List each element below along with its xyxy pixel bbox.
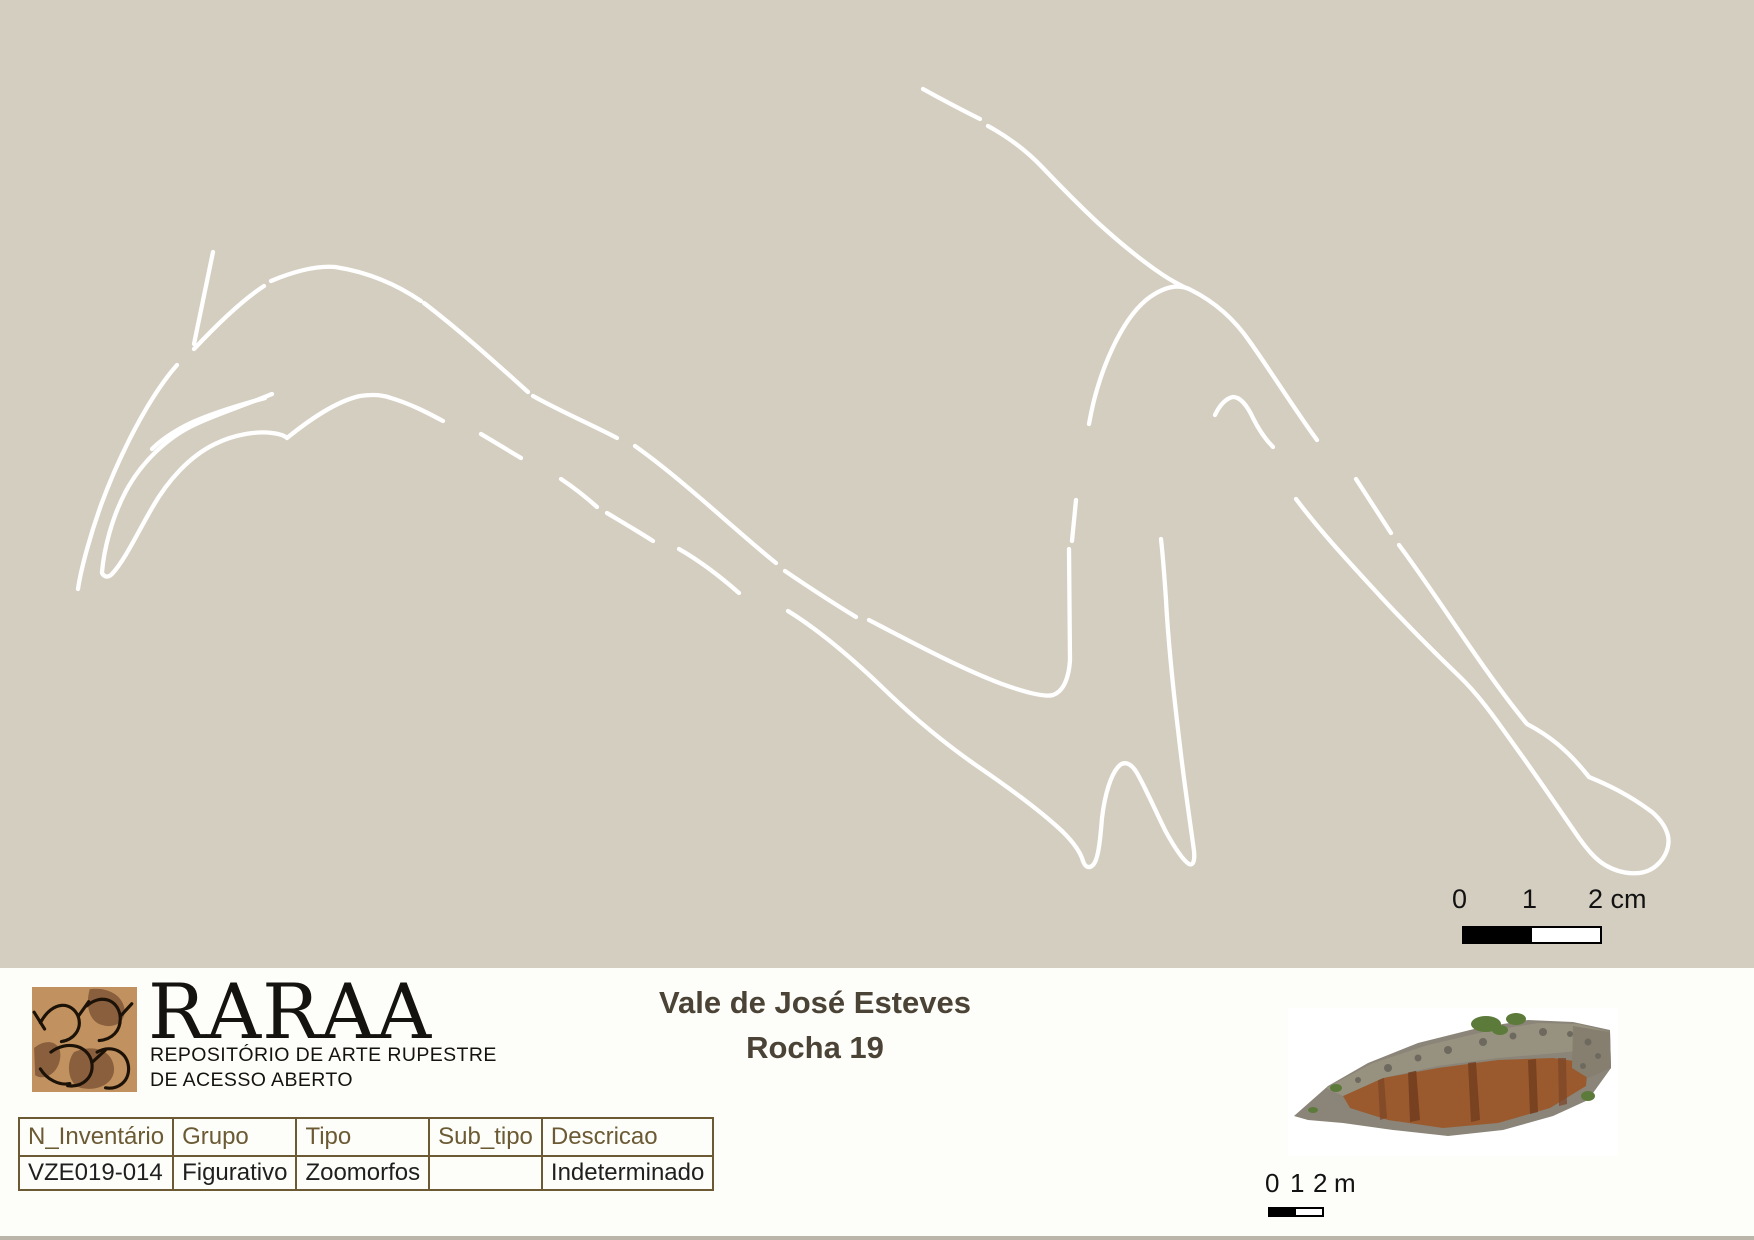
plate-footer: RARAA REPOSITÓRIO DE ARTE RUPESTRE DE AC… [0, 968, 1754, 1240]
head-top-line [271, 267, 421, 301]
raraa-logo-icon [32, 987, 137, 1092]
m-scale-tick-2: 2 [1313, 1168, 1327, 1199]
metadata-header-row: N_Inventário Grupo Tipo Sub_tipo Descric… [19, 1118, 713, 1156]
metadata-value-row: VZE019-014 Figurativo Zoomorfos Indeterm… [19, 1156, 713, 1190]
cm-scale-bar-black-segment [1464, 928, 1532, 942]
site-name: Vale de José Esteves [500, 980, 1130, 1025]
neck-top-dash-3 [635, 446, 776, 563]
header-tipo: Tipo [296, 1118, 429, 1156]
back-line-a [923, 89, 980, 119]
throat-dash-2 [561, 479, 597, 507]
cm-scale-tick-0: 0 [1452, 884, 1467, 915]
header-grupo: Grupo [173, 1118, 296, 1156]
rump-arch-line [1089, 287, 1317, 440]
throat-dash-4 [679, 549, 739, 593]
raraa-acronym: RARAA [148, 974, 432, 1050]
value-descricao: Indeterminado [542, 1156, 713, 1190]
value-tipo: Zoomorfos [296, 1156, 429, 1190]
rock-outcrop-photo [1288, 1008, 1618, 1156]
m-scale-bar-white-segment [1296, 1209, 1322, 1215]
neck-top-dash-2 [533, 396, 617, 438]
cm-scale-bar [1462, 926, 1602, 944]
tracing-panel: 0 1 2 cm [0, 0, 1754, 968]
value-grupo: Figurativo [173, 1156, 296, 1190]
cm-scale-tick-1: 1 [1522, 884, 1537, 915]
m-scale-tick-0: 0 [1265, 1168, 1279, 1199]
m-scale-tick-1: 1 [1290, 1168, 1304, 1199]
m-scale-bar-black-segment [1270, 1209, 1296, 1215]
header-descricao: Descricao [542, 1118, 713, 1156]
belly-line [869, 549, 1070, 696]
neck-top-dash-4 [785, 571, 856, 617]
belly-dash [1072, 500, 1076, 541]
page-bottom-edge [0, 1236, 1754, 1240]
hind-leg-hoof-line [1296, 499, 1669, 873]
cm-scale-bar-white-segment [1532, 928, 1600, 942]
muzzle-top-line [102, 394, 272, 572]
plate-title: Vale de José Esteves Rocha 19 [500, 980, 1130, 1070]
tracing-svg [0, 0, 1754, 968]
value-n-inventario: VZE019-014 [19, 1156, 173, 1190]
throat-dash-3 [607, 513, 653, 541]
raraa-subtitle-line2: DE ACESSO ABERTO [150, 1069, 353, 1092]
jaw-throat-line [102, 395, 443, 577]
hind-leg-dash [1356, 479, 1391, 533]
neck-top-dash-1 [424, 303, 528, 392]
catalog-plate: 0 1 2 cm [0, 0, 1754, 1240]
raraa-subtitle-line1: REPOSITÓRIO DE ARTE RUPESTRE [150, 1044, 497, 1067]
throat-dash-1 [481, 434, 521, 458]
cm-scale-tick-2: 2 cm [1588, 884, 1647, 915]
back-line-b [988, 126, 1186, 288]
header-n-inventario: N_Inventário [19, 1118, 173, 1156]
metadata-table: N_Inventário Grupo Tipo Sub_tipo Descric… [18, 1117, 714, 1191]
value-sub-tipo [429, 1156, 542, 1190]
header-sub-tipo: Sub_tipo [429, 1118, 542, 1156]
front-legs-line [788, 539, 1194, 867]
rump-inner-line [1215, 397, 1273, 447]
m-scale-bar [1268, 1207, 1324, 1217]
m-scale-unit: m [1334, 1168, 1356, 1199]
rock-number: Rocha 19 [500, 1025, 1130, 1070]
